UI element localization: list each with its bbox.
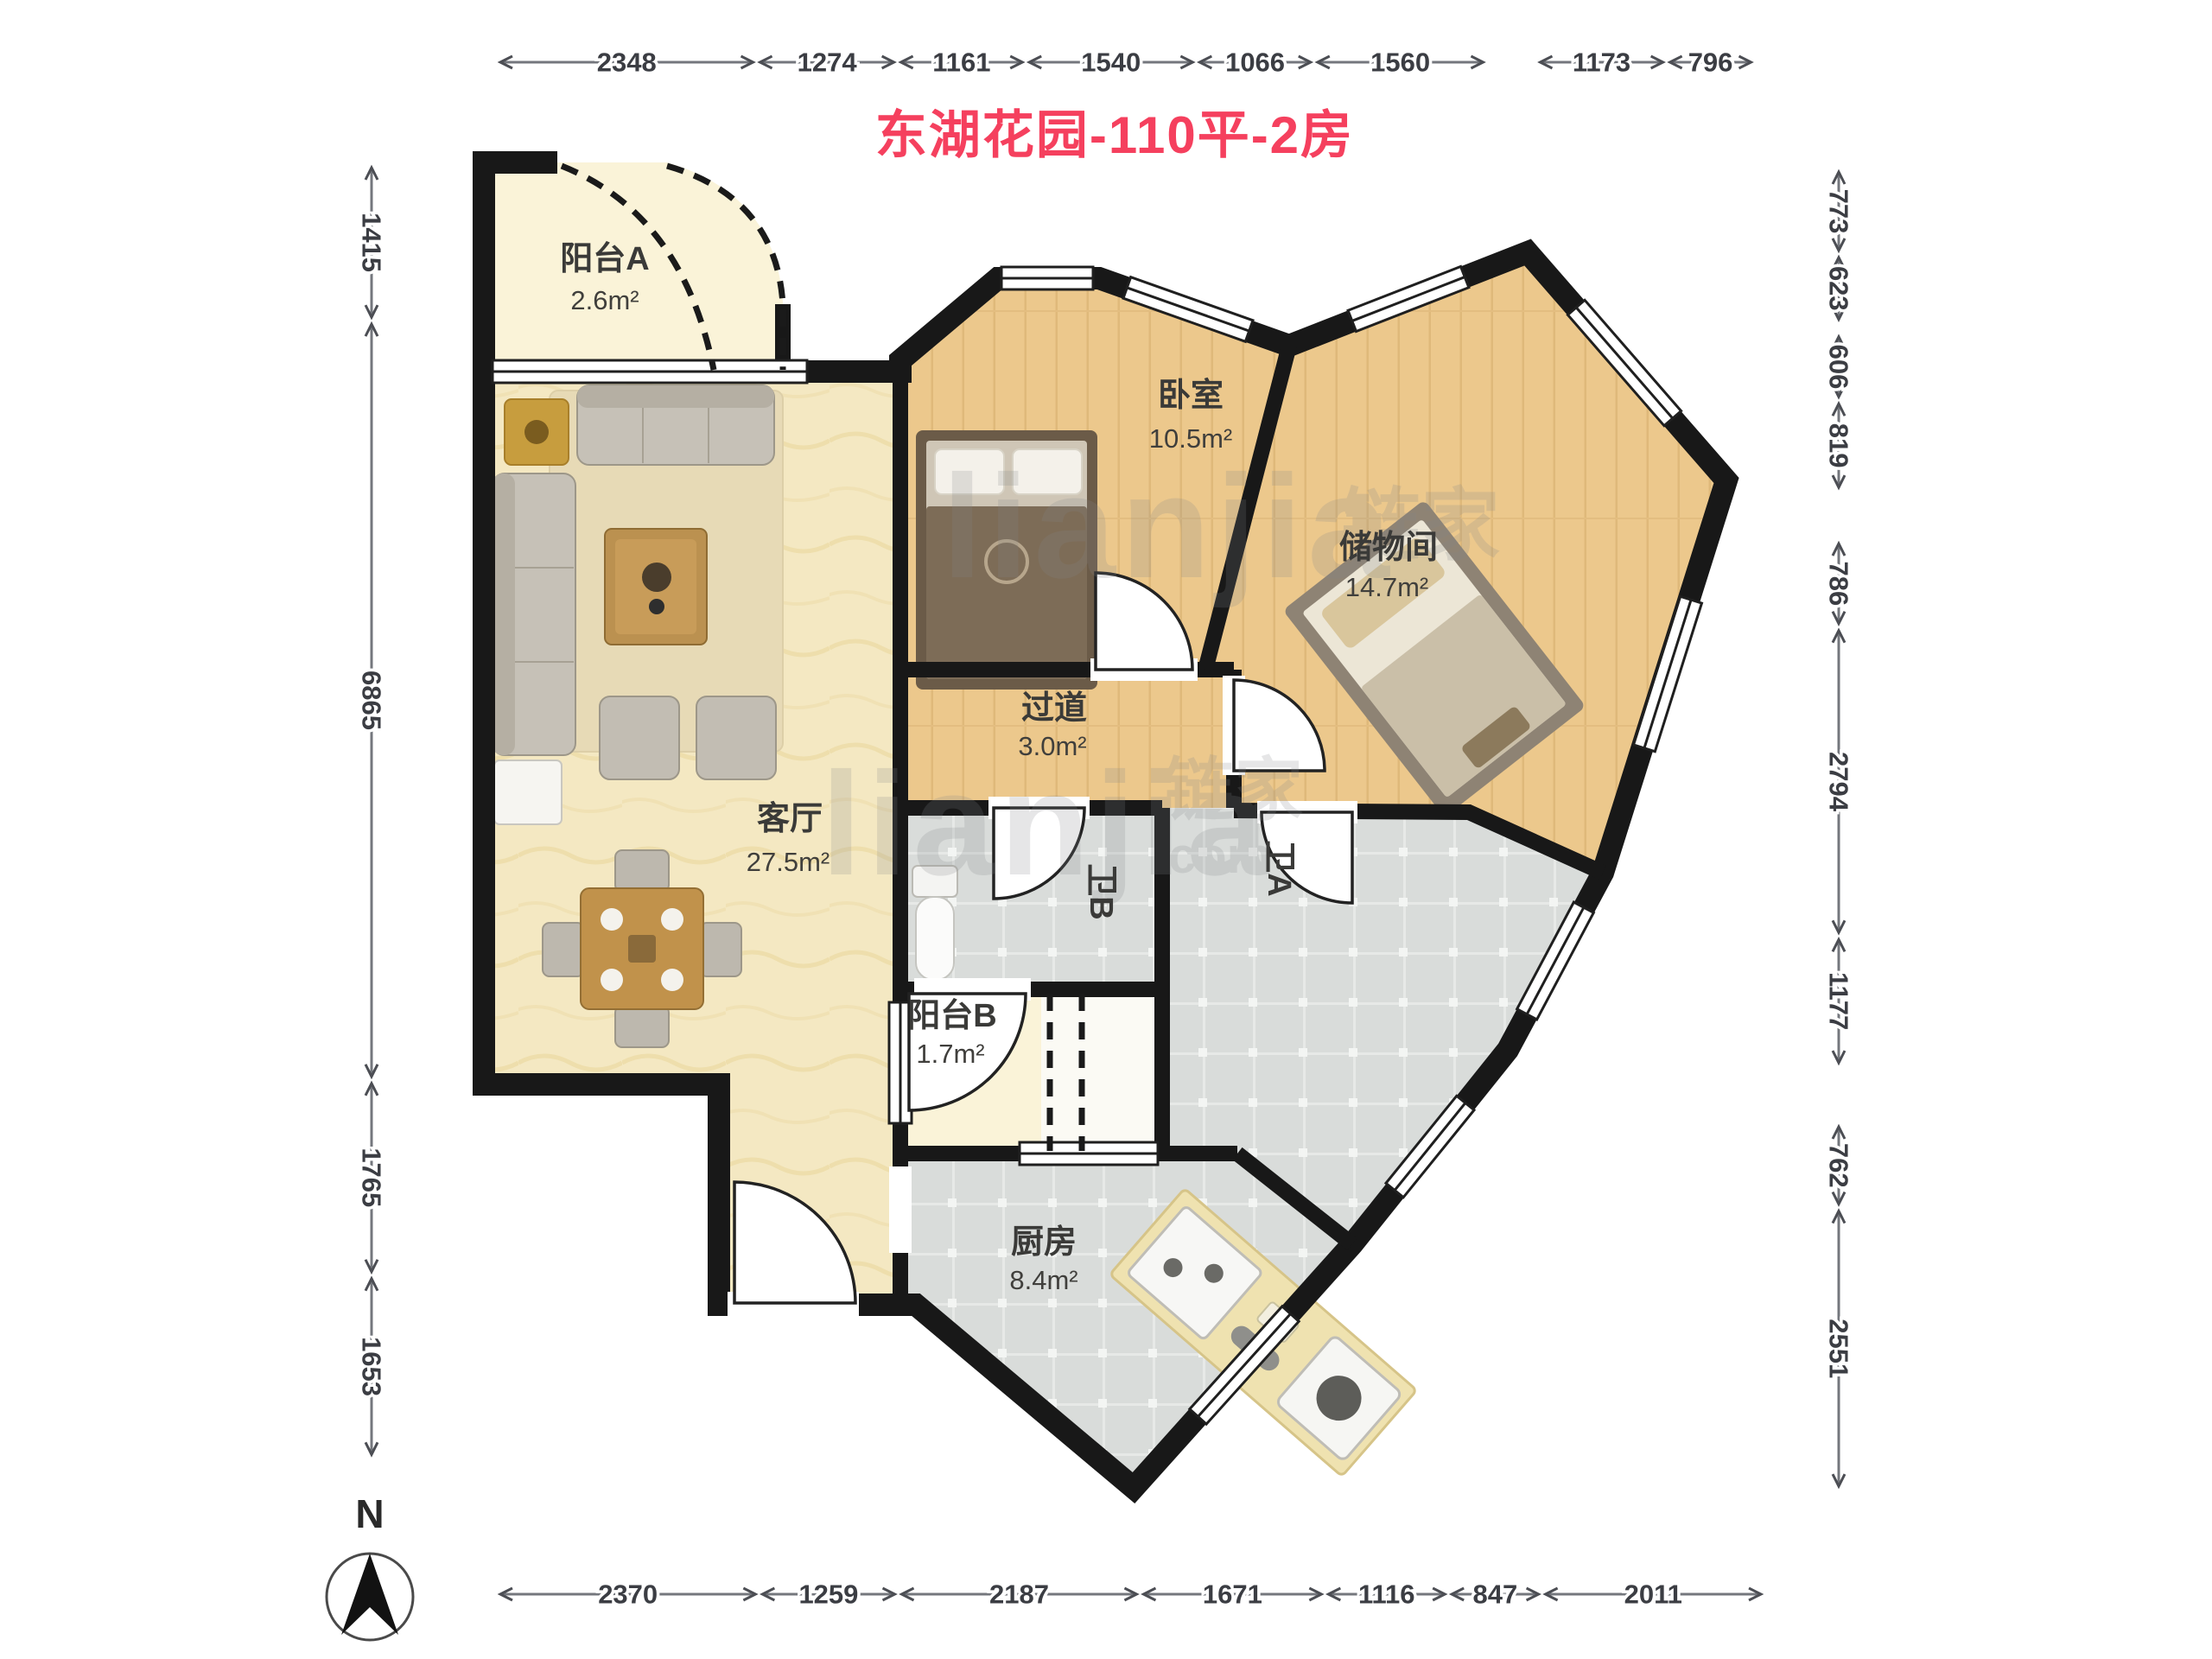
coffee-table	[605, 529, 707, 645]
dim-value: 1765	[357, 1147, 387, 1207]
dim-value: 606	[1824, 345, 1854, 390]
room-area-hallway: 3.0m²	[1018, 731, 1086, 761]
dim-value: 1259	[798, 1580, 858, 1610]
dim-value: 2370	[598, 1580, 658, 1610]
dim-value: 1415	[357, 213, 387, 272]
room-entry-nook	[1041, 989, 1162, 1154]
room-area-living: 27.5m²	[747, 847, 829, 877]
dim-value: 1274	[798, 48, 858, 78]
dim-value: 2011	[1624, 1580, 1682, 1610]
compass-label: N	[355, 1491, 384, 1536]
sofa-left	[493, 474, 575, 755]
dim-value: 1560	[1370, 48, 1430, 78]
side-table	[505, 399, 569, 465]
dim-value: 1653	[357, 1337, 387, 1396]
window	[1001, 267, 1093, 289]
dim-value: 762	[1824, 1143, 1854, 1188]
dim-value: 1066	[1225, 48, 1285, 78]
watermark-text: 链家	[1165, 752, 1303, 829]
compass: N	[327, 1491, 413, 1640]
dim-value: 2348	[597, 48, 657, 78]
room-label-bath-a: 卫A	[1261, 840, 1297, 896]
dim-value: 1671	[1203, 1580, 1262, 1610]
floor-plan: lianjia 链家 lianjia 链家 com 阳台A 2.6m² 卧室 1…	[0, 0, 2212, 1659]
dim-value: 796	[1688, 48, 1733, 78]
dim-value: 623	[1824, 266, 1854, 311]
window	[493, 360, 807, 383]
armchair	[600, 696, 679, 779]
room-area-bedroom: 10.5m²	[1149, 423, 1232, 454]
dim-value: 773	[1824, 189, 1854, 234]
dim-value: 2187	[989, 1580, 1049, 1610]
floorplan-page: 东湖花园-110平-2房	[0, 0, 2212, 1659]
armchair	[696, 696, 776, 779]
room-label-living: 客厅	[757, 800, 823, 837]
room-label-hallway: 过道	[1021, 690, 1087, 727]
room-label-bath-b: 卫B	[1083, 863, 1119, 919]
room-label-balcony-b: 阳台B	[907, 998, 996, 1034]
dim-value: 819	[1824, 423, 1854, 468]
dim-value: 2551	[1824, 1319, 1854, 1378]
room-area-balcony-b: 1.7m²	[916, 1039, 984, 1069]
dim-value: 1177	[1824, 972, 1854, 1030]
room-area-balcony-a: 2.6m²	[570, 285, 639, 315]
room-label-bedroom: 卧室	[1158, 377, 1224, 414]
dim-value: 2794	[1824, 752, 1854, 812]
room-label-storage: 储物间	[1339, 530, 1438, 566]
room-label-kitchen: 厨房	[1011, 1224, 1077, 1261]
watermark-text: com	[1168, 828, 1271, 884]
dim-value: 786	[1824, 562, 1854, 607]
side-cabinet	[494, 760, 562, 824]
dim-value: 1540	[1081, 48, 1141, 78]
room-label-balcony-a: 阳台A	[560, 241, 649, 277]
dim-value: 1173	[1573, 48, 1630, 78]
dim-value: 1116	[1358, 1580, 1415, 1610]
room-area-kitchen: 8.4m²	[1009, 1265, 1077, 1295]
dim-value: 847	[1473, 1580, 1518, 1610]
compass-needle-icon	[341, 1554, 398, 1635]
dim-value: 6865	[357, 671, 387, 730]
dim-value: 1161	[932, 48, 990, 78]
room-area-storage: 14.7m²	[1345, 572, 1428, 602]
watermark-text: lianjia	[942, 445, 1395, 609]
sofa-top	[577, 385, 774, 465]
window	[1020, 1142, 1158, 1165]
